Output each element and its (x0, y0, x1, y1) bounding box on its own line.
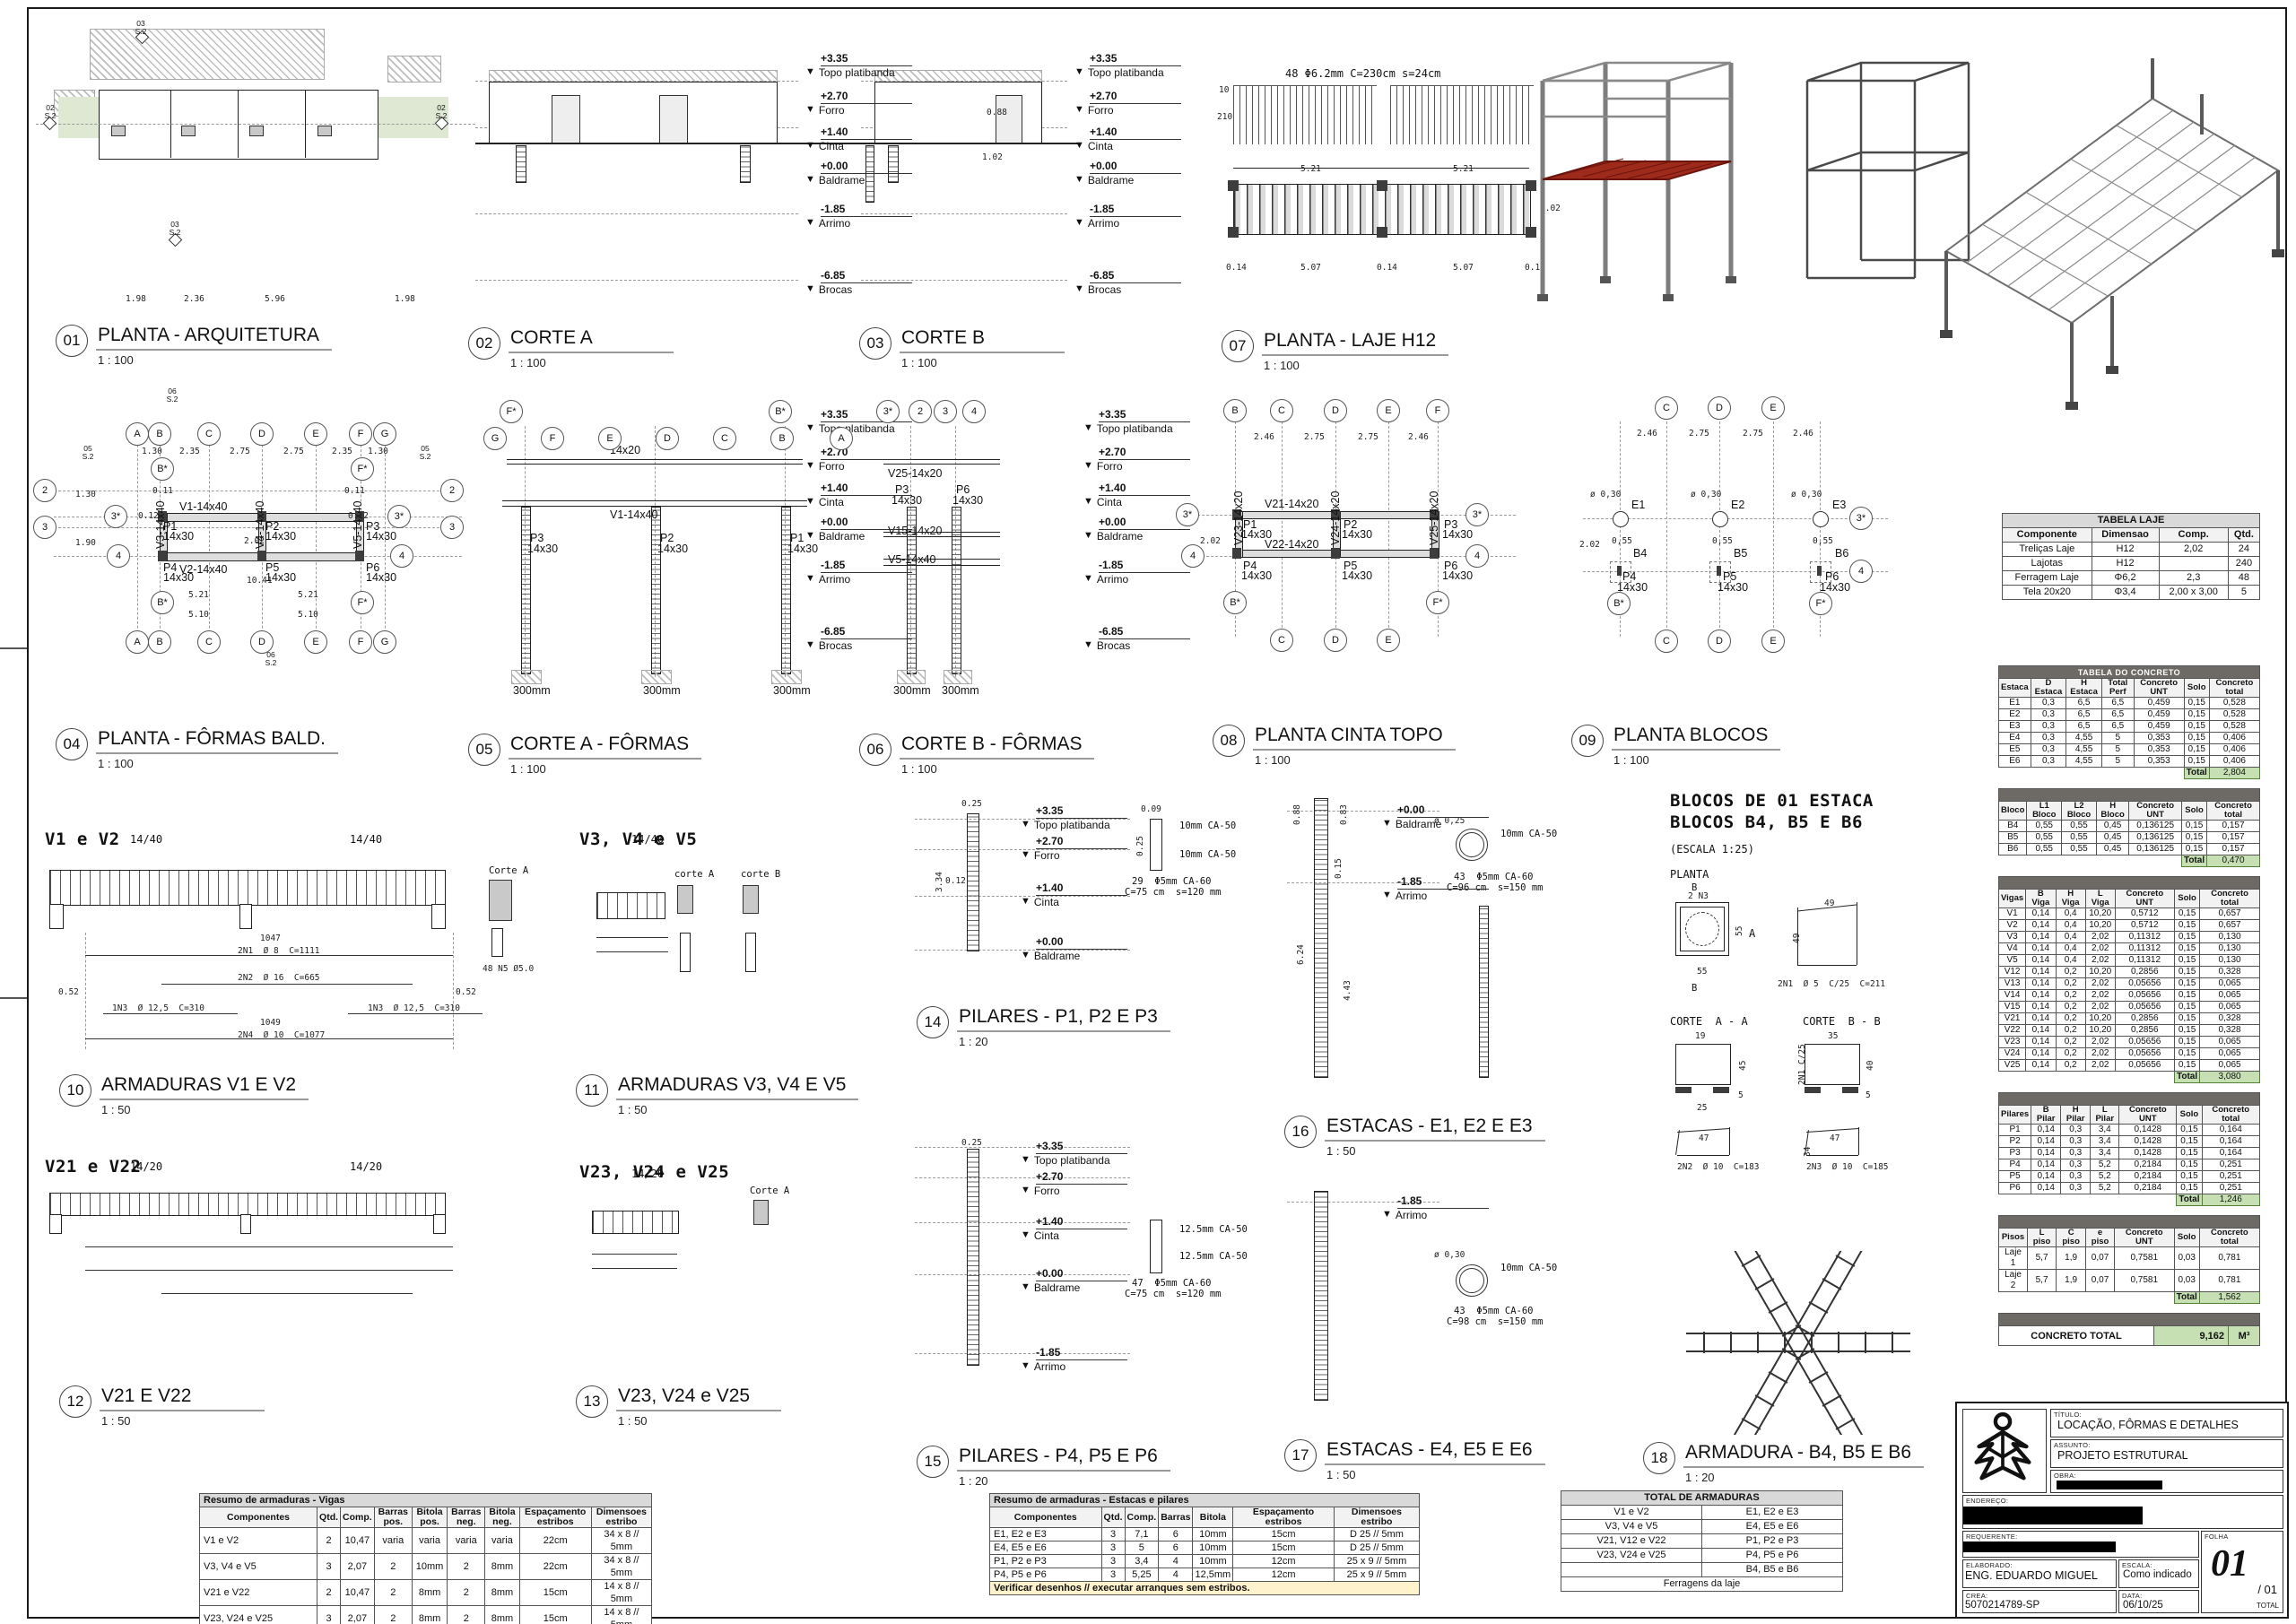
art-shape: Solo (2174, 890, 2199, 908)
art-shape: ▼Baldrame (1382, 818, 1500, 830)
art-shape (1537, 276, 1736, 301)
art-shape: Componentes (990, 1507, 1102, 1528)
viewport-name: V23, V24 e V25 (616, 1385, 781, 1411)
art-shape: Baldrame (819, 174, 865, 187)
art-shape: E60,34,5550,3530,150,406 (1999, 756, 2260, 768)
art-shape: V50,140,42,020,113120,150,130 (1999, 955, 2260, 967)
title-block: TÍTULO: LOCAÇÃO, FÔRMAS E DETALHES ASSUN… (1955, 1402, 2289, 1619)
cad-label: C=75 cm s=120 mm (1125, 887, 1221, 898)
art-shape: ESTACAS - E4, E5 E E61 : 50 (1325, 1439, 1545, 1481)
art-shape: Verificar desenhos // executar arranques… (990, 1582, 1420, 1595)
art-shape: P3 (1999, 1148, 2031, 1159)
art-shape: 0,15 (2174, 1037, 2199, 1048)
cad-label: 14/40 (130, 833, 162, 846)
cad-label: 5.21 (1300, 164, 1321, 174)
art-shape: PILARES - P4, P5 E P61 : 20 (957, 1446, 1170, 1488)
art-shape: V22 (1999, 1025, 2026, 1037)
redaction-bar (1963, 1541, 2116, 1552)
art-shape (1999, 877, 2260, 890)
cad-label: 45 (1738, 1061, 1748, 1071)
art-shape: 3,4 (2091, 1125, 2119, 1136)
cad-label: 14x30 (366, 571, 396, 584)
cad-label: V1-14x40 (610, 508, 658, 521)
art-shape (249, 126, 264, 136)
cad-label: 0.11 (152, 486, 173, 496)
art-shape: 0,15 (2174, 1013, 2199, 1025)
art-shape: PLANTA CINTA TOPO1 : 100 (1253, 725, 1456, 767)
art-shape: Total0,470 (1999, 855, 2260, 867)
art-shape: TABELA DO CONCRETO (1999, 666, 2260, 679)
art-shape: V3, V4 e V5 (200, 1554, 317, 1580)
art-shape: +2.70 (821, 90, 912, 104)
art-shape: Topo platibanda (1097, 422, 1173, 435)
art-shape: 10,20 (2085, 1013, 2115, 1025)
cad-label: E1 (1631, 499, 1645, 511)
art-shape: 0,065 (2200, 1048, 2260, 1060)
art-shape: Total2,804 (1999, 768, 2260, 779)
data-box: DATA: 06/10/25 (2118, 1590, 2199, 1613)
art-shape: 0,15 (2181, 821, 2206, 832)
art-shape: 0,528 (2209, 698, 2259, 709)
art-shape (2114, 1292, 2174, 1304)
art-shape: Ferragens da laje (1561, 1577, 1843, 1592)
cad-label: 1.30 (368, 447, 388, 456)
art-shape: Dimensoes estribo (1334, 1507, 1419, 1528)
art-shape: 3 (1101, 1528, 1125, 1541)
art-shape: 3 (1101, 1541, 1125, 1555)
art-shape: V210,140,210,200,28560,150,328 (1999, 1013, 2260, 1025)
viewport-name: CORTE B (900, 327, 1065, 353)
art-shape: V250,140,22,020,056560,150,065 (1999, 1060, 2260, 1072)
art-shape: -1.85 (1090, 203, 1181, 217)
art-shape: 0,251 (2202, 1183, 2260, 1194)
cad-label: 300mm (643, 684, 681, 697)
art-shape: ▼Forro (1083, 460, 1202, 473)
art-shape: Solo (2174, 1229, 2199, 1247)
art-shape: H Pilar (2061, 1106, 2091, 1125)
art-shape (36, 124, 475, 125)
elevation-marker: +0.00▼Baldrame (805, 160, 924, 187)
cad-label: 49 (1824, 899, 1834, 908)
art-shape: 0,2 (2056, 1025, 2085, 1037)
tabela-do-concreto: TABELA DO CONCRETOEstacaD EstacaH Estaca… (1998, 665, 2260, 1355)
art-shape: B6 (1999, 844, 2027, 855)
art-shape: Topo platibanda (1034, 1154, 1110, 1167)
cad-label: S.2 (45, 111, 57, 120)
grid-bubble: F* (1426, 591, 1449, 614)
art-shape: 240 (2228, 557, 2259, 571)
title-v14: 14PILARES - P1, P2 E P31 : 20 (917, 1006, 1170, 1048)
art-shape (1940, 330, 1952, 338)
elevation-marker: -1.85▼Arrimo (1074, 203, 1193, 230)
art-shape: 0,251 (2202, 1159, 2260, 1171)
art-shape: 0,528 (2209, 721, 2259, 733)
data-table: Resumo de armaduras - VigasComponentesQt… (199, 1493, 652, 1624)
grid-bubble: B* (1223, 591, 1247, 614)
art-shape: 4 (1159, 1568, 1193, 1582)
cad-label: 2N1 Ø 8 C=1111 (238, 946, 320, 956)
art-shape: V21, V12 e V22 (1561, 1534, 1702, 1549)
art-shape (1617, 566, 1622, 576)
viewport-name: PLANTA - LAJE H12 (1262, 330, 1448, 356)
escala-label: ESCALA: (2119, 1560, 2198, 1569)
art-shape: -1.85 (821, 203, 912, 217)
art-shape (967, 813, 979, 951)
cad-label: S.2 (436, 111, 448, 120)
art-shape: 0,2 (2056, 990, 2085, 1002)
cad-label: S.2 (170, 228, 181, 237)
art-shape (1666, 421, 1667, 637)
title-v09: 09PLANTA BLOCOS1 : 100 (1571, 725, 1780, 767)
viewport-number: 05 (468, 734, 500, 766)
grid-bubble: C (1270, 399, 1293, 422)
art-shape: +2.70 (1036, 1170, 1127, 1185)
art-shape: B Pilar (2031, 1106, 2061, 1125)
spot-elevation-icon: ▼ (1083, 422, 1093, 433)
requerente-label: REQUERENTE: (1963, 1532, 2198, 1541)
art-shape: CORTE B - FÔRMAS1 : 100 (900, 734, 1094, 776)
art-shape: V12 (1999, 967, 2026, 978)
art-shape: V24 (1999, 1048, 2026, 1060)
art-shape: 14 x 8 // 5mm (591, 1606, 651, 1624)
concreto-total-value: 9,162 (2154, 1326, 2229, 1345)
art-shape (1805, 1044, 1860, 1085)
art-shape (1817, 566, 1822, 576)
art-shape: +0.00 (821, 160, 912, 174)
art-shape: 0,45 (2096, 821, 2128, 832)
art-shape: 6,5 (2101, 698, 2134, 709)
cad-label: 2.46 (1408, 432, 1429, 442)
art-shape: Tela 20x20 (2003, 586, 2092, 600)
art-shape: +3.35 (821, 52, 912, 66)
art-shape: 0,459 (2134, 698, 2184, 709)
art-shape (2119, 1194, 2177, 1206)
cad-label: 0.88 (987, 108, 1007, 117)
spot-elevation-icon: ▼ (1021, 1154, 1031, 1165)
spot-elevation-icon: ▼ (1021, 896, 1031, 907)
art-shape: +0.00 (1036, 935, 1127, 950)
cad-label: 1.02 (982, 152, 1003, 162)
grid-bubble: B (770, 427, 794, 450)
art-shape (161, 984, 413, 985)
grid-bubble: E (598, 427, 622, 450)
art-shape: 0,7581 (2114, 1270, 2174, 1292)
art-shape: 0,05656 (2115, 1002, 2174, 1013)
art-shape: 0,781 (2199, 1247, 2259, 1270)
cad-label: 2.46 (1637, 429, 1657, 439)
art-shape: 2,804 (2209, 768, 2259, 779)
grid-bubble: 3* (387, 505, 411, 528)
art-shape: 0,459 (2134, 709, 2184, 721)
viewport-13-v23-v24-v25: V23, V24 e V2514/20Corte A (574, 1157, 870, 1376)
art-shape (158, 551, 167, 561)
spot-elevation-icon: ▼ (1021, 1281, 1031, 1292)
art-shape: E1 (1999, 698, 2031, 709)
art-shape (475, 213, 798, 214)
viewport-name: PILARES - P4, P5 E P6 (957, 1446, 1170, 1472)
art-shape: E4, E5 e E6 (990, 1541, 1102, 1555)
art-shape: varia (448, 1528, 485, 1554)
grid-bubble: 2 (440, 479, 464, 502)
cad-label: 14/20 (130, 1160, 162, 1173)
art-shape (2134, 768, 2184, 779)
art-shape (1233, 168, 1529, 169)
art-shape: -6.85 (821, 625, 912, 639)
art-shape: ▼Arrimo (1382, 1209, 1500, 1221)
art-shape: 0,470 (2207, 855, 2260, 867)
grid-bubble: B* (151, 457, 174, 481)
art-shape: Componente (2003, 528, 2092, 543)
art-shape: 2,02 (2085, 932, 2115, 943)
viewport-scale: 1 : 50 (1325, 1142, 1545, 1158)
art-shape: 0,4 (2056, 920, 2085, 932)
spot-elevation-icon: ▼ (805, 639, 815, 650)
art-shape (1713, 1087, 1729, 1093)
grid-bubble: D (250, 422, 274, 446)
art-shape: ▼Topo platibanda (1021, 819, 1139, 831)
art-shape: PilaresB PilarH PilarL PilarConcreto UNT… (1999, 1106, 2260, 1125)
cad-label: 2.46 (1254, 432, 1274, 442)
art-shape: Solo (2177, 1106, 2202, 1125)
viewport-number: 04 (56, 728, 88, 760)
art-shape: 0,7581 (2114, 1247, 2174, 1270)
cad-label: 2.02 (1200, 536, 1221, 546)
art-shape (209, 445, 210, 651)
art-shape: 2 (448, 1606, 485, 1624)
art-shape (49, 1214, 62, 1234)
art-shape (2085, 1072, 2115, 1083)
viewport-name: V21 E V22 (100, 1385, 265, 1411)
art-shape (659, 95, 688, 144)
art-shape: L2 Bloco (2062, 802, 2097, 821)
art-shape (103, 1013, 238, 1014)
art-shape: V230,140,22,020,056560,150,065 (1999, 1037, 2260, 1048)
art-shape (1999, 1093, 2260, 1106)
cad-label: 5.07 (1300, 263, 1321, 273)
cad-label: 10 (1219, 85, 1229, 95)
art-shape: V21 e V22 (200, 1580, 317, 1606)
cad-label: 29 Φ5mm CA-60 (1132, 876, 1212, 887)
concreto-total-label: CONCRETO TOTAL (1999, 1326, 2154, 1345)
art-shape: 0,3 (2061, 1159, 2091, 1171)
grid-bubble: F (541, 427, 564, 450)
cad-label: 2.35 (332, 447, 352, 456)
cad-label: 0.14 (1226, 263, 1247, 273)
data-table: BlocoL1 BlocoL2 BlocoH BlocoConcreto UNT… (1998, 788, 2260, 867)
art-shape (1806, 1128, 1858, 1133)
art-shape: +0.00 (821, 516, 912, 530)
cad-label: 14x30 (1718, 581, 1748, 594)
art-shape: 4 (1159, 1555, 1193, 1568)
folha-total-label: TOTAL (2257, 1602, 2279, 1610)
art-shape (85, 1246, 453, 1247)
art-shape: V3, V4 e V5E4, E5 e E6 (1561, 1520, 1843, 1534)
elevation-marker: +0.00▼Baldrame (1021, 1267, 1139, 1294)
art-shape: E1, E2 e E3 (990, 1528, 1102, 1541)
viewport-16-estacas-e1-e2-e3: 0.880.830.156.244.43ø 0,2510mm CA-5043 Φ… (1287, 789, 1668, 1107)
title-v17: 17ESTACAS - E4, E5 E E61 : 50 (1284, 1439, 1545, 1481)
art-shape: 0,45 (2096, 844, 2128, 855)
art-shape (677, 885, 693, 914)
art-shape: 0,14 (2026, 908, 2056, 920)
data-table: PisosL pisoC pisoe pisoConcreto UNTSoloC… (1998, 1215, 2260, 1304)
art-shape: 0,2856 (2115, 967, 2174, 978)
art-shape (2072, 160, 2197, 231)
art-shape: TABELA DO CONCRETO (1999, 666, 2260, 679)
title-v07: 07PLANTA - LAJE H121 : 100 (1222, 330, 1448, 372)
art-shape: Forro (1034, 1185, 1060, 1197)
grid-bubble: B* (151, 591, 174, 614)
art-shape: ▼Baldrame (1074, 174, 1193, 187)
art-shape: 12cm (1233, 1568, 1335, 1582)
art-shape: 0,2 (2056, 1060, 2085, 1072)
art-shape: Espaçamento estribos (519, 1507, 591, 1528)
viewport-scale: 1 : 50 (616, 1100, 858, 1116)
art-shape: Arrimo (819, 217, 850, 230)
tabela-laje: TABELA LAJEComponenteDimensaoComp.Qtd.Tr… (2002, 513, 2260, 600)
art-shape: 0,353 (2134, 744, 2184, 756)
art-shape (1928, 36, 2296, 421)
cad-label: 1047 (260, 934, 281, 943)
art-shape: P4 (1999, 1159, 2031, 1171)
art-shape: 0,14 (2026, 955, 2056, 967)
art-shape: 0,2 (2056, 978, 2085, 990)
viewport-name: PLANTA - ARQUITETURA (96, 325, 332, 351)
art-shape: Topo platibanda (819, 66, 895, 79)
cad-label: 12.5mm CA-50 (1179, 1251, 1248, 1262)
art-shape: 0,251 (2202, 1171, 2260, 1183)
viewport-number: 16 (1284, 1116, 1317, 1148)
art-shape: B Viga (2026, 890, 2056, 908)
art-shape (431, 904, 446, 929)
title-v12: 12V21 E V221 : 50 (59, 1385, 265, 1428)
viewport-scale: 1 : 20 (1683, 1468, 1924, 1484)
art-shape (2061, 1194, 2091, 1206)
cad-label: 0.25 (961, 799, 982, 809)
cad-label: 14x30 (1241, 569, 1272, 582)
art-shape: V1 e V2210,47variavariavariavaria22cm34 … (200, 1528, 652, 1554)
art-shape: 0,14 (2026, 1060, 2056, 1072)
cad-label: 47 (1830, 1133, 1839, 1143)
art-shape: 2,02 (2085, 943, 2115, 955)
art-shape: D Estaca (2031, 679, 2066, 698)
art-shape (49, 1193, 446, 1216)
art-shape: -6.85 (1090, 269, 1181, 283)
art-shape: V21, V12 e V22P1, P2 e P3 (1561, 1534, 1843, 1549)
art-shape: 0,3 (2031, 756, 2066, 768)
art-shape (1233, 85, 1377, 144)
art-shape: CORTE B1 : 100 (900, 327, 1065, 369)
art-shape (1773, 421, 1774, 637)
art-shape: 0,353 (2134, 733, 2184, 744)
cad-label: 300mm (773, 684, 811, 697)
art-shape (596, 951, 668, 952)
art-shape: +3.35 (1099, 408, 1190, 422)
art-shape: 5,7 (2028, 1247, 2057, 1270)
art-shape: Φ3,4 (2092, 586, 2159, 600)
title-v06: 06CORTE B - FÔRMAS1 : 100 (859, 734, 1094, 776)
art-shape: 0,15 (2174, 932, 2199, 943)
art-shape: 0,14 (2026, 920, 2056, 932)
spot-elevation-icon: ▼ (805, 573, 815, 584)
cad-label: 14/40 (350, 833, 382, 846)
art-shape: 0,406 (2209, 744, 2259, 756)
art-shape: 0,3 (2031, 744, 2066, 756)
art-shape: E2 (1999, 709, 2031, 721)
art-shape: 15cm (519, 1580, 591, 1606)
viewport-08-planta-cinta-topo: V21-14x20V22-14x20V23-14x20V24-14x20V25-… (1175, 395, 1529, 717)
spot-elevation-icon: ▼ (1382, 818, 1392, 829)
art-shape: 0,05656 (2115, 1060, 2174, 1072)
elevation-marker: -6.85▼Brocas (1074, 269, 1193, 296)
viewport-scale: 1 : 100 (900, 760, 1094, 776)
cad-label: 0.11 (344, 486, 365, 496)
cad-label: 2N2 Ø 16 C=665 (238, 973, 320, 983)
art-shape: 0,2 (2056, 1002, 2085, 1013)
art-shape: 0,136125 (2129, 821, 2182, 832)
art-shape: +3.35 (1090, 52, 1181, 66)
cad-label: 0,55 (1612, 536, 1632, 546)
art-shape (1232, 548, 1241, 559)
data-table: TABELA LAJEComponenteDimensaoComp.Qtd.Tr… (2002, 513, 2260, 600)
art-shape: Resumo de armaduras - Vigas (200, 1494, 652, 1507)
folha-number: 01 (2211, 1546, 2248, 1582)
elevation-marker: +3.35▼Topo platibanda (805, 52, 924, 79)
viewport-name: PLANTA BLOCOS (1612, 725, 1780, 751)
art-shape: Total3,080 (1999, 1072, 2260, 1083)
cad-label: 2.36 (184, 294, 204, 304)
art-shape: Concreto total (2199, 1229, 2259, 1247)
art-shape: V2 (1999, 920, 2026, 932)
art-shape: B60,550,550,450,1361250,150,157 (1999, 844, 2260, 855)
art-shape (1314, 1191, 1328, 1401)
cad-label: 1.90 (75, 538, 96, 548)
art-shape: Resumo de armaduras - Vigas (200, 1494, 652, 1507)
art-shape: 0,3 (2061, 1136, 2091, 1148)
art-shape: EstacaD EstacaH EstacaTotal PerfConcreto… (1999, 679, 2260, 698)
cad-label: 0.52 (58, 987, 79, 997)
art-shape: 0,15 (2177, 1183, 2202, 1194)
art-shape: 12cm (1233, 1555, 1335, 1568)
spot-elevation-icon: ▼ (1074, 104, 1084, 115)
art-shape: 0,3 (2031, 698, 2066, 709)
spot-elevation-icon: ▼ (1074, 66, 1084, 77)
art-shape (1999, 877, 2260, 890)
art-shape: V4 (1999, 943, 2026, 955)
art-shape: 0,2184 (2119, 1159, 2177, 1171)
art-shape (491, 928, 503, 957)
art-shape (680, 933, 691, 972)
art-shape (1805, 1087, 1821, 1093)
data-table: TABELA DO CONCRETOEstacaD EstacaH Estaca… (1998, 665, 2260, 779)
art-shape: 0,15 (2174, 990, 2199, 1002)
art-shape (1719, 421, 1720, 637)
art-shape: 0,4 (2056, 908, 2085, 920)
cad-label: 14x30 (527, 543, 558, 555)
viewport-14-pilares-p1-p2-p3: 0.250.123.340.090.2510mm CA-5010mm CA-50… (915, 794, 1300, 1000)
art-shape: Resumo de armaduras - Estacas e pilares (990, 1494, 1420, 1507)
cad-label: E2 (1731, 499, 1744, 511)
art-shape: 0,2 (2056, 1048, 2085, 1060)
art-shape: Verificar desenhos // executar arranques… (990, 1582, 1420, 1595)
crea-box: CREA: 5070214789-SP (1962, 1590, 2117, 1613)
art-shape: V1 (1999, 908, 2026, 920)
art-shape: 0,1428 (2119, 1125, 2177, 1136)
art-shape (596, 892, 665, 919)
art-shape: +2.70 (1036, 835, 1127, 849)
cad-label: 12.5mm CA-50 (1179, 1224, 1248, 1235)
spot-elevation-icon: ▼ (1021, 849, 1031, 860)
